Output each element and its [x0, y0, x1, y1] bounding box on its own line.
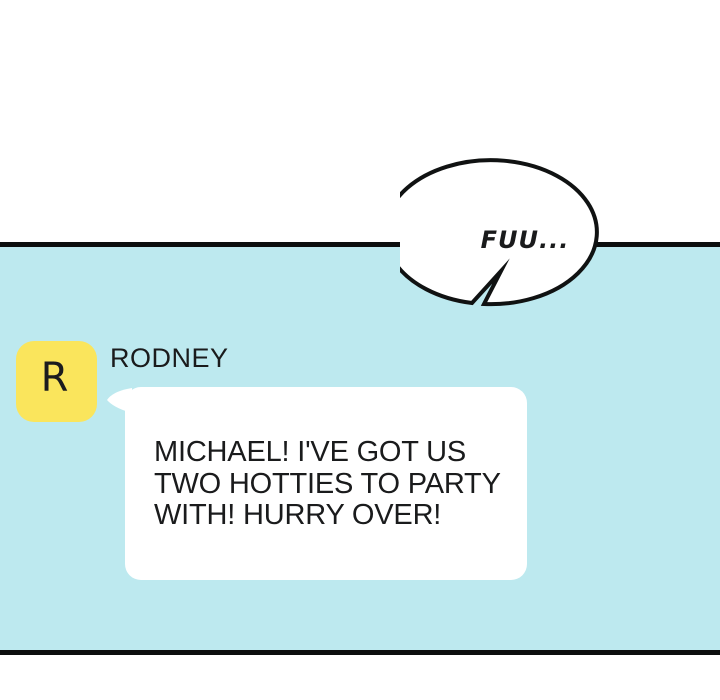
speech-bubble-text: FUU...	[460, 228, 590, 252]
message-line: WITH! HURRY OVER!	[154, 500, 501, 532]
message-line: TWO HOTTIES TO PARTY	[154, 469, 501, 501]
comic-page: FUU... R RODNEY MICHAEL! I'VE GOT US TWO…	[0, 0, 720, 700]
avatar-letter: R	[41, 358, 69, 398]
message-line: MICHAEL! I'VE GOT US	[154, 437, 501, 469]
chat-message-text: MICHAEL! I'VE GOT US TWO HOTTIES TO PART…	[154, 437, 501, 532]
character-name: RODNEY	[110, 345, 229, 372]
panel-border-bottom	[0, 650, 720, 655]
avatar: R	[16, 341, 97, 422]
